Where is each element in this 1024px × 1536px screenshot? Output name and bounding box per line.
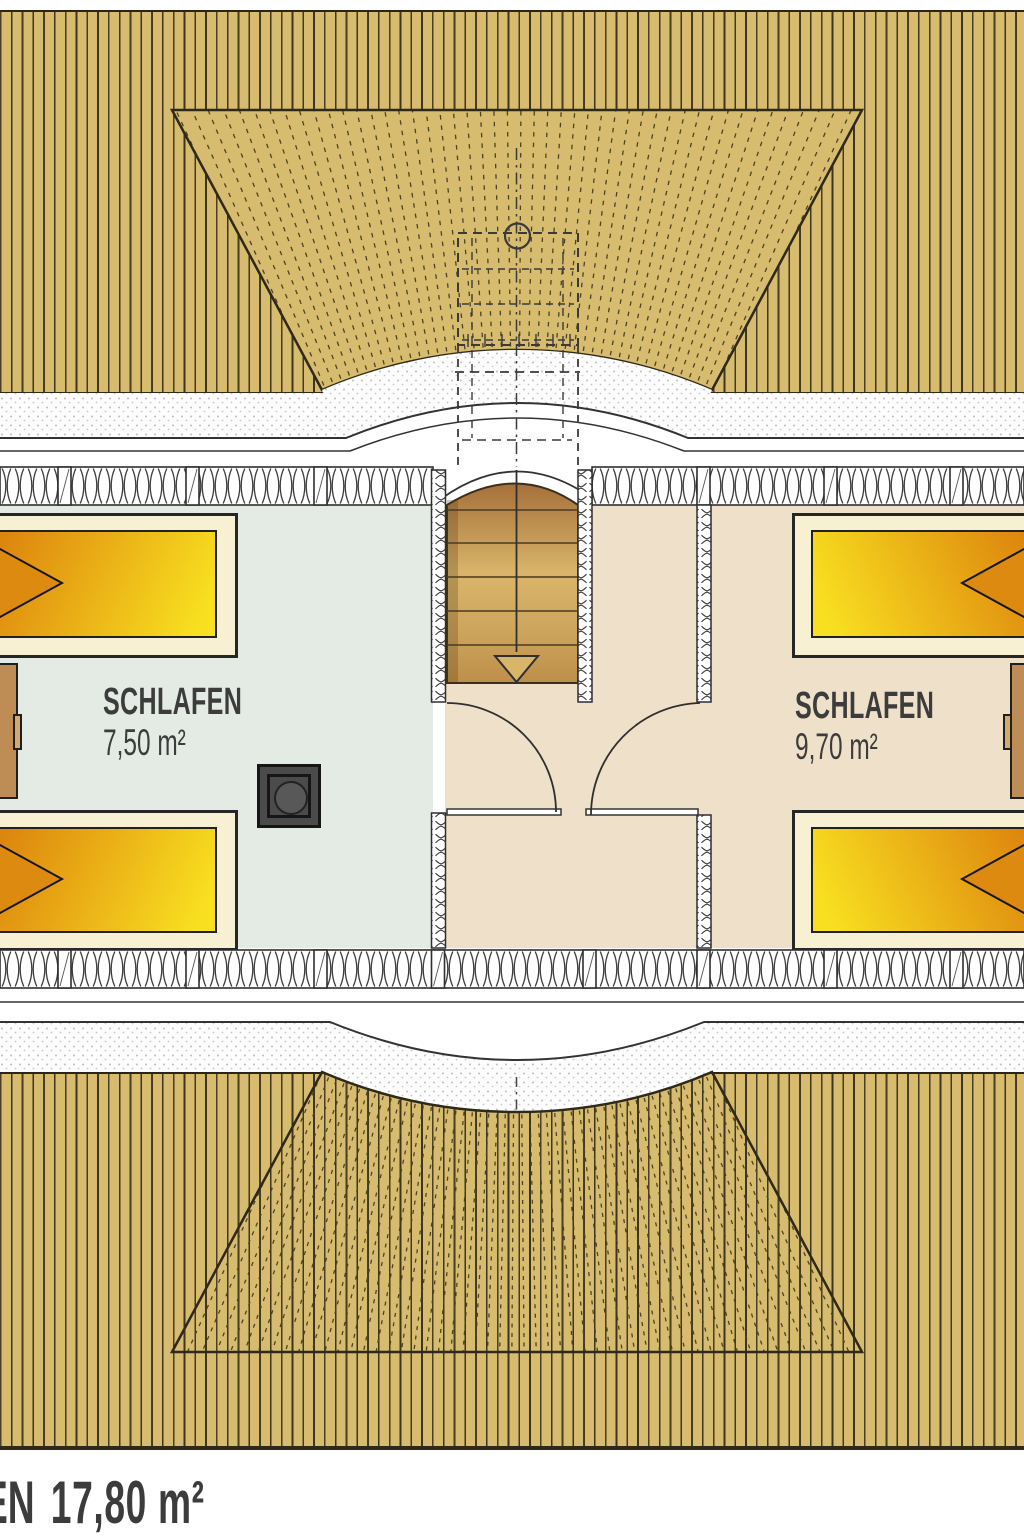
bed [0,513,238,658]
roof-top [0,10,1024,395]
mattress [0,530,217,638]
room-area: 7,50 m² [103,723,242,763]
wall-band-bottom [0,950,1024,1002]
floor-plan: SCHLAFEN 7,50 m² SCHLAFEN 9,70 m² EN17,8… [0,0,1024,1536]
caption-room-area: EN17,80 m² [0,1468,205,1536]
room-name: SCHLAFEN [103,682,242,723]
mattress [811,827,1024,933]
chimney-flue-icon [274,781,308,815]
nightstand-right [1010,663,1024,799]
wall-band-top [0,467,1024,505]
nightstand-knob [13,714,22,750]
caption-name-fragment: EN [0,1469,35,1536]
chimney-inner [267,774,311,818]
bed [0,810,238,951]
roof-bottom [0,1072,1024,1450]
room-label-right: SCHLAFEN 9,70 m² [795,686,934,767]
chimney [257,764,321,828]
room-label-left: SCHLAFEN 7,50 m² [103,682,242,763]
nightstand-left [0,663,18,799]
nightstand-knob [1003,714,1012,750]
mattress [811,530,1024,638]
bed [792,513,1024,658]
caption-area: 17,80 m² [51,1469,205,1536]
mattress [0,827,217,933]
bed [792,810,1024,951]
room-name: SCHLAFEN [795,686,934,727]
room-area: 9,70 m² [795,727,934,767]
